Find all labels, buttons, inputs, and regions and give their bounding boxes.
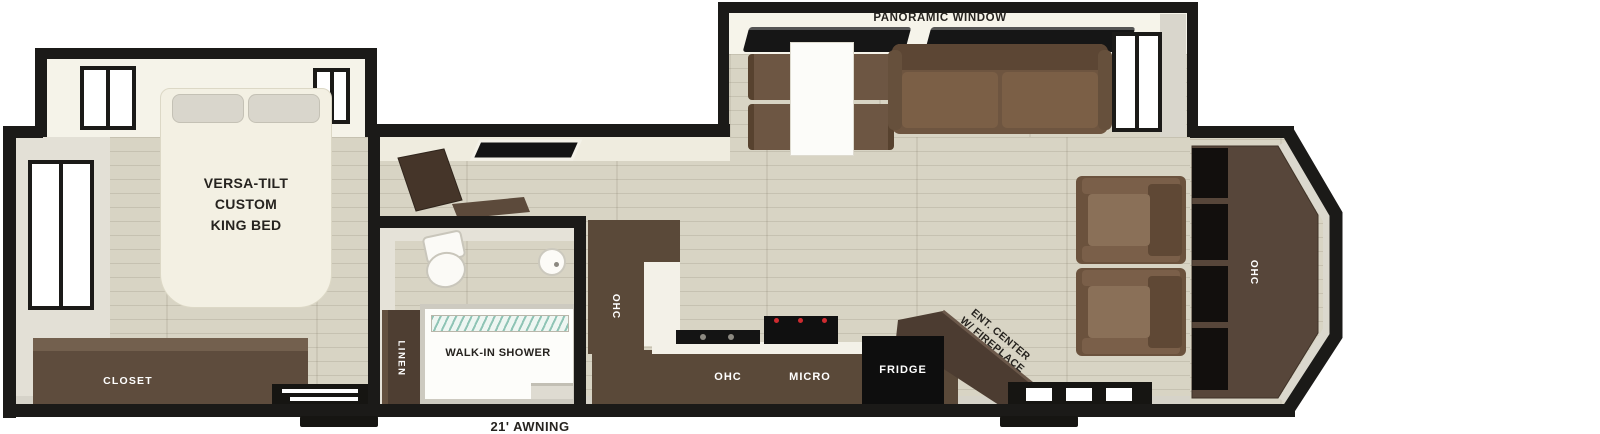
shower-label: WALK-IN SHOWER xyxy=(423,347,573,359)
sofa-back xyxy=(892,44,1108,70)
sofa-armrest xyxy=(1098,50,1112,130)
pillow xyxy=(248,94,320,123)
window-pane xyxy=(1116,36,1135,128)
top-wall-mid xyxy=(374,124,730,137)
window-pane xyxy=(1139,36,1158,128)
dinette-chair xyxy=(748,104,794,150)
top-mid-wall-face xyxy=(380,137,730,161)
window-pane xyxy=(334,72,347,120)
bathroom-right-wall xyxy=(574,216,586,412)
bed-label-line2: CUSTOM xyxy=(161,194,331,215)
pillow xyxy=(172,94,244,123)
awning-label: 21' AWNING xyxy=(450,419,610,434)
recliner-back xyxy=(1148,184,1182,256)
bedroom-entry-steps xyxy=(272,384,368,406)
main-door-step xyxy=(1000,416,1078,427)
top-wall-front-stub xyxy=(3,126,43,138)
bath-sink xyxy=(538,248,566,276)
kitchen-ohc-wall-label: OHC xyxy=(610,293,621,318)
recliner-chair xyxy=(1076,268,1186,356)
dinette-table xyxy=(790,42,854,156)
bedroom-slideout-window-left-icon xyxy=(80,66,136,130)
panoramic-window-label: PANORAMIC WINDOW xyxy=(790,12,1090,25)
kitchen-upper-cabinet-top xyxy=(588,220,680,264)
rear-ohc-label-wrap: OHC xyxy=(1234,252,1274,292)
burner-knob xyxy=(774,318,779,323)
bedroom-divider-wall xyxy=(368,124,380,412)
window-pane xyxy=(84,70,106,126)
rear-bay-wall xyxy=(1288,132,1336,410)
faucet-dot xyxy=(728,334,734,340)
bottom-wall xyxy=(3,404,1295,417)
sofa-cushion xyxy=(1002,72,1098,128)
living-side-window-icon xyxy=(1112,32,1162,132)
bed-label-line3: KING BED xyxy=(161,215,331,236)
kitchen-countertop-notch xyxy=(644,262,680,346)
burner-knob xyxy=(822,318,827,323)
king-bed: VERSA-TILT CUSTOM KING BED xyxy=(160,88,332,308)
micro-label: MICRO xyxy=(778,371,842,383)
panoramic-slideout-right-wall-face xyxy=(1160,14,1186,137)
rv-floorplan: PANORAMIC WINDOW VERSA-TILT CUSTOM KING … xyxy=(0,0,1600,434)
closet-label: CLOSET xyxy=(48,375,208,387)
faucet-dot xyxy=(700,334,706,340)
shower-step xyxy=(531,383,573,399)
linen-cabinet: LINEN xyxy=(382,310,420,406)
window-pane xyxy=(110,70,132,126)
shower-glass xyxy=(431,315,569,332)
bedroom-left-window-icon xyxy=(28,160,94,310)
kitchen-ohc-counter-label: OHC xyxy=(700,371,756,383)
dinette-chair xyxy=(748,54,794,100)
closet: CLOSET xyxy=(33,338,308,407)
window-pane xyxy=(63,164,90,306)
kitchen-ohc-wall-label-wrap: OHC xyxy=(588,284,644,328)
recliner-chair xyxy=(1076,176,1186,264)
linen-label: LINEN xyxy=(396,340,407,376)
bed-label-line1: VERSA-TILT xyxy=(161,173,331,194)
bathroom-top-wall xyxy=(368,216,586,228)
recliner-back xyxy=(1148,276,1182,348)
sofa xyxy=(892,44,1108,134)
walk-in-shower: WALK-IN SHOWER xyxy=(420,304,578,404)
sofa-cushion xyxy=(902,72,998,128)
top-wall-rear xyxy=(1190,126,1294,138)
bath-top-wall-face xyxy=(380,228,574,241)
rear-ohc-label: OHC xyxy=(1248,259,1259,284)
cooktop xyxy=(764,316,838,344)
bedroom-door-step xyxy=(300,416,378,427)
window-pane xyxy=(32,164,59,306)
burner-knob xyxy=(798,318,803,323)
sofa-armrest xyxy=(888,50,902,130)
right-top-wall-face xyxy=(1198,138,1290,156)
bed-label: VERSA-TILT CUSTOM KING BED xyxy=(161,173,331,236)
fridge: FRIDGE xyxy=(862,336,944,407)
recliner-seat xyxy=(1088,286,1150,338)
recliner-seat xyxy=(1088,194,1150,246)
kitchen-sink xyxy=(676,330,760,344)
sink-drain xyxy=(554,262,559,267)
front-wall xyxy=(3,126,16,418)
fridge-label: FRIDGE xyxy=(862,364,944,376)
